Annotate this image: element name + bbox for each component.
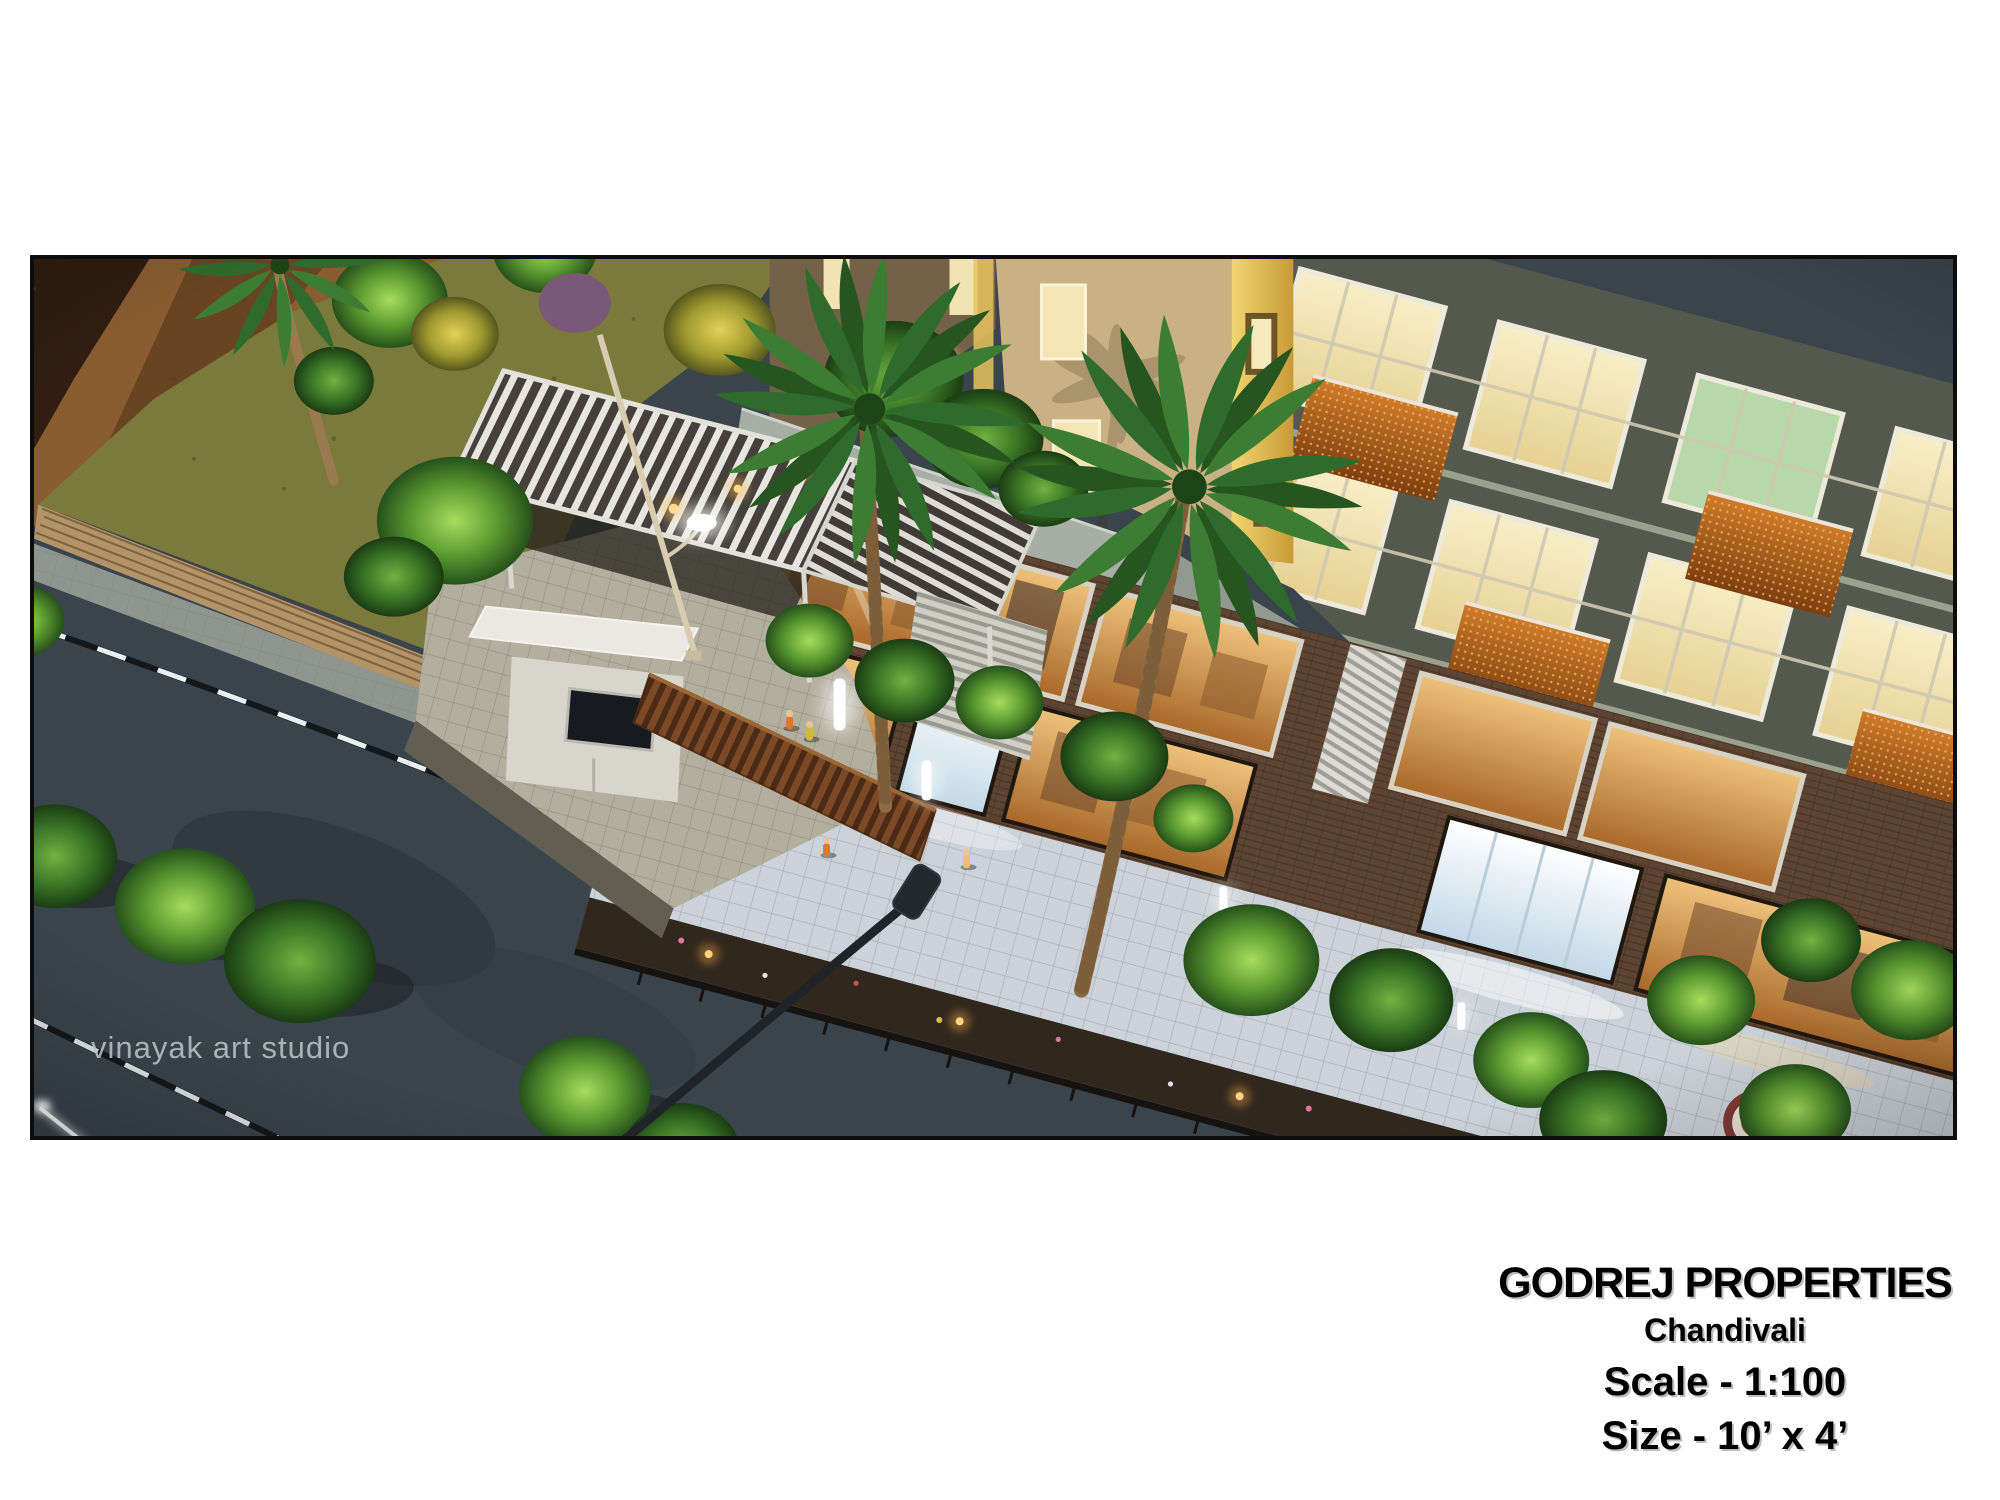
- architectural-model-photo: vinayak art studio: [30, 255, 1957, 1140]
- caption-size: Size - 10’ x 4’: [1460, 1414, 1990, 1458]
- watermark: vinayak art studio: [91, 1030, 350, 1066]
- caption-title: GODREJ PROPERTIES: [1460, 1260, 1990, 1306]
- page: vinayak art studio GODREJ PROPERTIES Cha…: [0, 0, 2000, 1500]
- caption-subtitle: Chandivali: [1460, 1313, 1990, 1348]
- model-scene: [34, 259, 1953, 1136]
- vignette: [34, 259, 1953, 1136]
- caption-scale: Scale - 1:100: [1460, 1360, 1990, 1404]
- caption: GODREJ PROPERTIES Chandivali Scale - 1:1…: [1460, 1260, 1990, 1458]
